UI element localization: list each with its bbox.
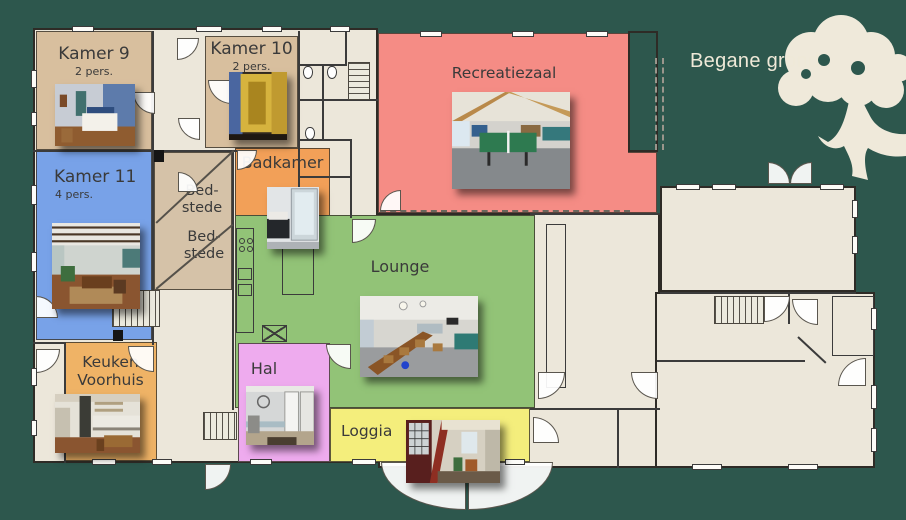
tree-silhouette bbox=[766, 8, 906, 183]
room-capacity: 2 pers. bbox=[37, 65, 151, 78]
room-label: Kamer 10 bbox=[206, 40, 297, 60]
chimney bbox=[154, 150, 164, 162]
window bbox=[262, 26, 282, 32]
room-recreatiezaal-arm bbox=[628, 152, 657, 213]
shower-photo bbox=[267, 187, 319, 249]
window bbox=[352, 459, 376, 465]
window bbox=[31, 368, 37, 386]
dining-room-photo bbox=[360, 296, 478, 377]
wardrobe-photo bbox=[229, 72, 287, 140]
stove-burner bbox=[239, 246, 245, 252]
building-notch bbox=[628, 31, 658, 152]
wall bbox=[33, 150, 237, 152]
window bbox=[586, 31, 608, 37]
kitchen-counter bbox=[236, 228, 254, 333]
room-label: Hal bbox=[239, 360, 329, 378]
window bbox=[92, 459, 116, 465]
wall bbox=[660, 292, 856, 294]
dashed-line bbox=[655, 58, 657, 150]
wall bbox=[350, 139, 352, 218]
loggia-photo bbox=[406, 420, 500, 483]
wall bbox=[322, 64, 324, 140]
window bbox=[31, 252, 37, 272]
window bbox=[852, 236, 858, 254]
dumbwaiter-box bbox=[262, 325, 287, 342]
wall bbox=[33, 342, 64, 344]
room-label-line2: Voorhuis bbox=[65, 372, 156, 390]
window bbox=[250, 459, 272, 465]
window bbox=[712, 184, 736, 190]
window bbox=[871, 428, 877, 452]
kitchen-island bbox=[282, 247, 314, 295]
stove-burner bbox=[239, 238, 245, 244]
wall bbox=[530, 213, 660, 215]
dashed-line bbox=[662, 58, 664, 150]
staircase bbox=[203, 412, 237, 440]
staircase bbox=[714, 296, 764, 324]
toilet-icon bbox=[305, 127, 315, 140]
stove-burner bbox=[247, 246, 253, 252]
room-label: Recreatiezaal bbox=[379, 65, 629, 83]
window bbox=[852, 200, 858, 218]
stove-burner bbox=[247, 238, 253, 244]
room-label: Kamer 11 bbox=[37, 168, 151, 188]
window bbox=[871, 308, 877, 330]
room-capacity: 2 pers. bbox=[206, 60, 297, 73]
bedroom-photo bbox=[55, 84, 135, 146]
wall bbox=[617, 408, 619, 468]
window bbox=[512, 31, 534, 37]
wall bbox=[232, 150, 234, 410]
window bbox=[676, 184, 700, 190]
wall bbox=[657, 360, 805, 362]
floor-plan: Begane grond Kamer 9 2 pers. Kamer 10 2 … bbox=[0, 0, 906, 520]
wall bbox=[298, 139, 350, 141]
room-capacity: 4 pers. bbox=[37, 188, 151, 201]
window bbox=[31, 112, 37, 126]
hallway-photo bbox=[246, 386, 314, 445]
room-label: Lounge bbox=[236, 258, 534, 276]
wall-small-room bbox=[832, 296, 874, 356]
window bbox=[196, 26, 222, 32]
right-wing-top-room bbox=[660, 186, 856, 292]
page-title: Begane grond bbox=[690, 50, 819, 73]
sink bbox=[238, 268, 252, 280]
window bbox=[505, 459, 525, 465]
toilet-icon bbox=[327, 66, 337, 79]
recreation-room-photo bbox=[452, 92, 570, 189]
staircase bbox=[348, 62, 370, 100]
window bbox=[788, 464, 818, 470]
window bbox=[871, 385, 877, 409]
window bbox=[330, 26, 350, 32]
wall bbox=[298, 176, 352, 178]
window bbox=[31, 70, 37, 88]
wall bbox=[530, 408, 660, 410]
window bbox=[820, 184, 844, 190]
window bbox=[692, 464, 722, 470]
dashed-line bbox=[380, 210, 630, 212]
window bbox=[152, 459, 172, 465]
window bbox=[420, 31, 442, 37]
bedstede-area bbox=[154, 152, 232, 290]
window bbox=[31, 420, 37, 436]
living-room-photo bbox=[52, 223, 140, 309]
wall-closet bbox=[546, 224, 566, 388]
kitchen-photo bbox=[55, 394, 140, 453]
sink bbox=[238, 284, 252, 296]
door-fan bbox=[205, 464, 231, 490]
wall bbox=[345, 31, 347, 66]
window bbox=[72, 26, 94, 32]
chimney bbox=[113, 330, 123, 341]
toilet-icon bbox=[303, 66, 313, 79]
window bbox=[31, 185, 37, 205]
room-label: Kamer 9 bbox=[37, 45, 151, 65]
